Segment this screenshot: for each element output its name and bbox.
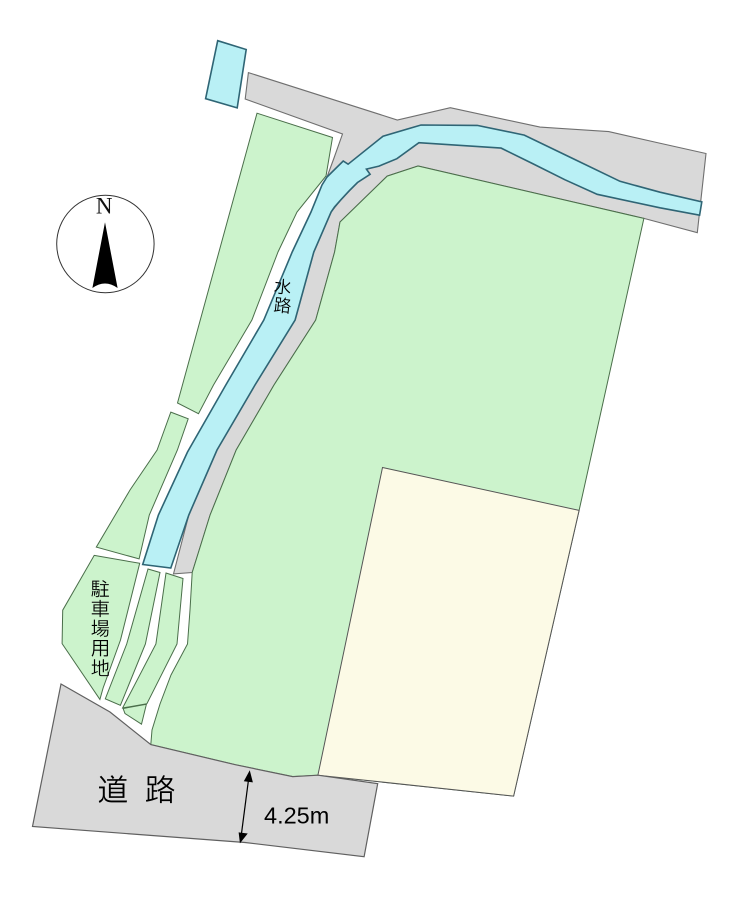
svg-text:4.25m: 4.25m <box>264 803 329 829</box>
svg-text:N: N <box>96 194 113 219</box>
